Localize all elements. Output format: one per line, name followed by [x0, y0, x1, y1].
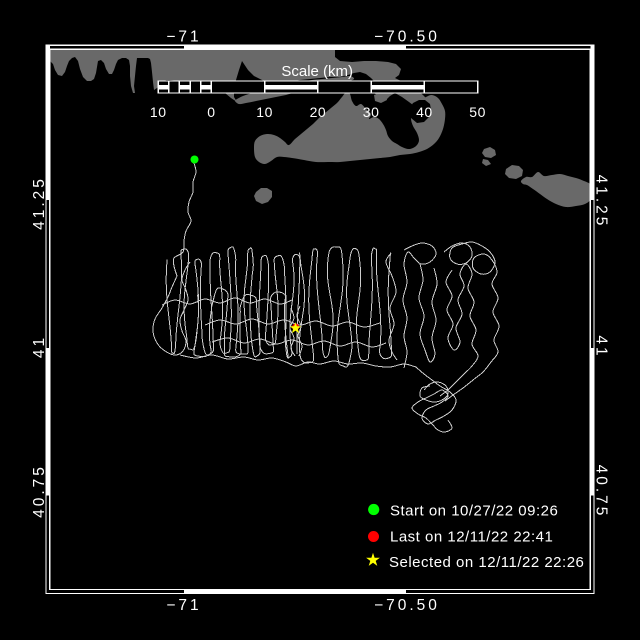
svg-text:30: 30: [363, 104, 380, 120]
svg-text:41: 41: [593, 335, 610, 358]
svg-text:−71: −71: [166, 597, 201, 614]
svg-text:10: 10: [256, 104, 273, 120]
svg-text:Last on 12/11/22 22:41: Last on 12/11/22 22:41: [390, 529, 553, 546]
svg-text:−70.50: −70.50: [374, 29, 440, 46]
svg-text:Selected on 12/11/22 22:26: Selected on 12/11/22 22:26: [389, 554, 584, 571]
svg-text:41: 41: [31, 335, 48, 358]
svg-text:−71: −71: [166, 29, 201, 46]
svg-text:Scale (km): Scale (km): [281, 63, 353, 80]
svg-text:50: 50: [469, 104, 486, 120]
svg-text:41.25: 41.25: [593, 175, 610, 229]
svg-text:−70.50: −70.50: [374, 597, 440, 614]
svg-text:Start on 10/27/22 09:26: Start on 10/27/22 09:26: [390, 503, 558, 520]
svg-text:10: 10: [150, 104, 167, 120]
svg-text:40.75: 40.75: [31, 464, 48, 518]
svg-text:40: 40: [416, 104, 433, 120]
svg-text:40.75: 40.75: [593, 465, 610, 519]
svg-text:41.25: 41.25: [31, 176, 48, 230]
svg-text:0: 0: [207, 104, 215, 120]
svg-text:20: 20: [310, 104, 327, 120]
